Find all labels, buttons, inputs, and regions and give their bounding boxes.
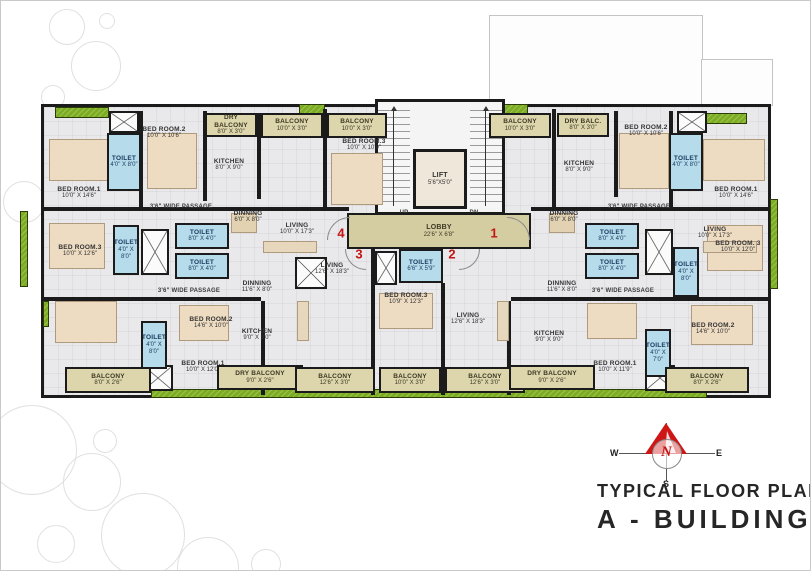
lawn-strip [55, 107, 109, 118]
decorative-circle [251, 549, 281, 571]
furniture-sofa [263, 241, 317, 253]
lawn-strip [43, 301, 49, 327]
wall-segment [323, 109, 327, 211]
wall-segment [614, 111, 618, 197]
wall-segment [139, 111, 143, 209]
plan-type-title: TYPICAL FLOOR PLAN [597, 481, 803, 502]
flat-number-3: 3 [355, 247, 362, 262]
wall-segment [531, 207, 769, 211]
duct-shaft [375, 251, 397, 285]
wall-segment [441, 283, 445, 395]
furniture-bed [691, 305, 753, 345]
duct-shaft [109, 111, 139, 133]
stair-flight-down [470, 104, 502, 208]
wall-segment [203, 111, 207, 201]
up-arrow-icon [391, 106, 397, 111]
compass-rose: N S E W [619, 417, 715, 487]
furniture-bed [379, 293, 433, 329]
stair-direction-line [393, 110, 394, 206]
furniture-bed [179, 305, 229, 341]
flat-number-2: 2 [448, 247, 455, 262]
decorative-circle [49, 9, 85, 45]
stair-tower [375, 99, 505, 215]
furniture-bed [55, 301, 117, 343]
duct-shaft [295, 257, 327, 289]
decorative-circle [101, 493, 185, 571]
furniture-dining-table [549, 213, 575, 233]
duct-shaft [645, 365, 675, 391]
decorative-circle [63, 453, 121, 511]
floor-plan-sheet: BED ROOM.110'0" X 14'6"TOILET4'0" X 8'0"… [0, 0, 811, 571]
furniture-bed [587, 303, 637, 339]
flat-number-4: 4 [337, 226, 344, 241]
furniture-bed [49, 139, 113, 181]
duct-shaft [677, 111, 707, 133]
furniture-bed [49, 223, 105, 269]
decorative-circle [99, 13, 115, 29]
compass-east-label: E [716, 448, 722, 458]
lawn-strip [20, 211, 28, 287]
furniture-bed [331, 153, 383, 205]
stair-direction-line [485, 110, 486, 206]
lawn-strip [299, 104, 325, 114]
lawn-strip [151, 389, 707, 398]
furniture-bed [619, 133, 669, 189]
furniture-sofa [297, 301, 309, 341]
decorative-circle [177, 537, 239, 571]
furniture-sofa [703, 241, 757, 253]
duct-shaft [143, 365, 173, 391]
duct-shaft [645, 229, 673, 275]
title-block: TYPICAL FLOOR PLAN A - BUILDING [597, 481, 803, 535]
wall-segment [261, 301, 265, 395]
furniture-bed [703, 139, 765, 181]
furniture-dining-table [231, 213, 257, 233]
decorative-circle [71, 41, 121, 91]
up-arrow-icon [483, 106, 489, 111]
wall-segment [41, 207, 349, 211]
flat-number-1: 1 [490, 226, 497, 241]
wall-segment [257, 113, 261, 199]
building-title: A - BUILDING [597, 504, 803, 535]
furniture-bed [147, 133, 197, 189]
furniture-sofa [497, 301, 509, 341]
duct-shaft [141, 229, 169, 275]
terrace-outline [701, 59, 773, 106]
decorative-circle [37, 525, 75, 563]
lawn-strip [770, 199, 778, 289]
decorative-circle [93, 429, 117, 453]
compass-north-label: N [661, 444, 672, 461]
terrace-outline [489, 15, 703, 106]
wall-segment [511, 297, 769, 301]
wall-segment [552, 109, 556, 211]
compass-west-label: W [610, 448, 619, 458]
wall-segment [669, 111, 673, 209]
